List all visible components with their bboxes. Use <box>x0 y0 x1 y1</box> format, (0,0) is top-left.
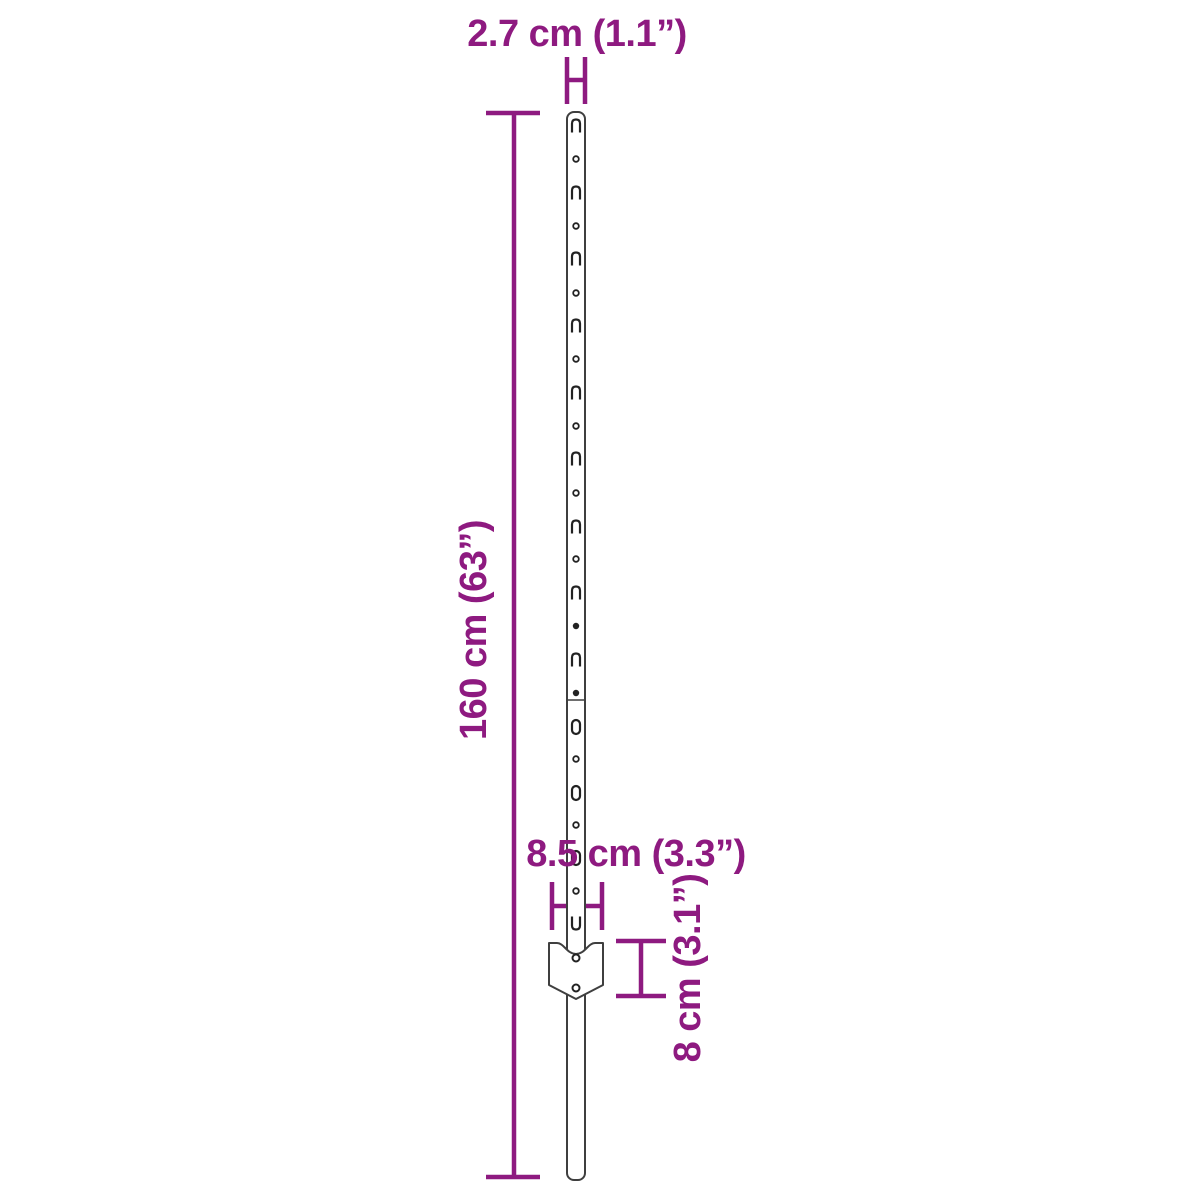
dimension-diagram-canvas: 2.7 cm (1.1”) 160 cm (63”) 8.5 cm (3.3”)… <box>0 0 1200 1200</box>
plate-hole <box>573 985 580 992</box>
post-slot <box>572 786 580 800</box>
label-total-height: 160 cm (63”) <box>453 520 495 740</box>
post-hole <box>573 690 579 696</box>
post-hole <box>573 290 579 296</box>
label-post-width: 2.7 cm (1.1”) <box>467 13 687 55</box>
product-dimension-diagram: 2.7 cm (1.1”) 160 cm (63”) 8.5 cm (3.3”)… <box>0 0 1200 1200</box>
post-slot <box>572 720 580 734</box>
post-hole <box>573 756 579 762</box>
plate-hole <box>573 955 580 962</box>
post-hole <box>573 356 579 362</box>
post-hole <box>573 556 579 562</box>
post-hole <box>573 223 579 229</box>
post-body <box>567 112 585 1180</box>
post-hole <box>573 490 579 496</box>
label-plate-width: 8.5 cm (3.3”) <box>526 833 746 875</box>
post-hole <box>573 888 579 894</box>
label-plate-height: 8 cm (3.1”) <box>667 874 709 1063</box>
post-hole <box>573 623 579 629</box>
post-hole <box>573 822 579 828</box>
post-hole <box>573 423 579 429</box>
post-hole <box>573 156 579 162</box>
